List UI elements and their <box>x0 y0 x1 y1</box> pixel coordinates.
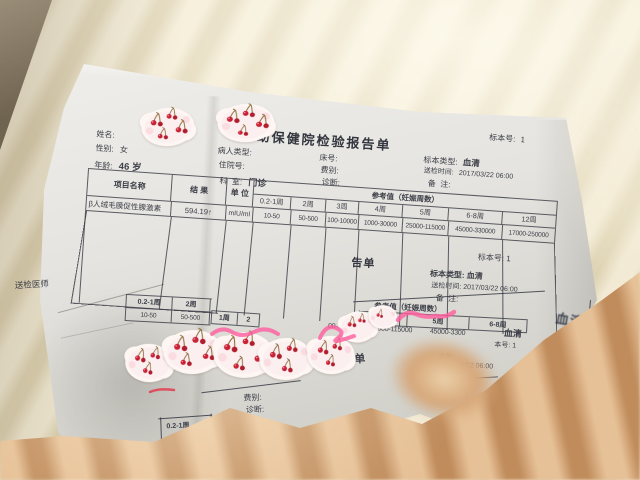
cherry-sticker <box>367 303 399 331</box>
patient-type-label: 病人类型: <box>217 145 252 158</box>
fee-label: 费别: <box>243 392 262 404</box>
specimen-fragment: 本号: 1 <box>494 340 516 351</box>
photo-lab-report-on-blanket: 姓名: 性别: 女 年龄: 46 岁 病人类型: 住院号: 科 室: 门诊 幼保… <box>0 0 640 480</box>
specimen-type-value: 血清 <box>463 157 481 168</box>
gender-row: 性别: 女 <box>95 142 128 155</box>
week-col: 2周 <box>291 197 327 212</box>
week-col: 1周 <box>211 311 238 325</box>
week-col: 2 <box>237 313 260 327</box>
serum-overlap: 血清 <box>504 326 523 340</box>
week-col: 2周 <box>172 297 211 311</box>
week-col: 3周 <box>326 199 360 214</box>
col-unit: 单 位 <box>226 179 255 207</box>
remark-label: 备 注: <box>427 178 450 191</box>
bed-label: 床号: <box>319 152 338 164</box>
mini-table: 0.2-1周 2周 10-50 50-500 <box>125 294 212 325</box>
col-result: 结 果 <box>171 175 227 205</box>
ref-cell: 10-50 <box>253 208 292 225</box>
specimen-no-label: 标本号: <box>489 133 516 144</box>
title-fragment: 告单 <box>351 254 376 271</box>
specimen-no: 标本号: 1 <box>478 252 511 265</box>
specimen-no-value: 1 <box>520 135 525 144</box>
week-col: 0.2-1周 <box>253 194 292 209</box>
specimen-no-row: 标本号: 1 <box>489 132 526 145</box>
cherry-sticker <box>215 101 276 145</box>
week-col: 5周 <box>407 314 470 329</box>
name-label: 姓名: <box>96 129 115 141</box>
doctor-label: 送检医师 <box>15 277 50 291</box>
send-time-value: 2017/03/22 06:00 <box>459 170 514 181</box>
gender-label: 性别: <box>95 143 114 153</box>
send-time-label: 送检时间: <box>423 167 453 176</box>
week-col: 0.2-1周 <box>126 295 173 309</box>
ref-cell: 50-500 <box>172 310 211 324</box>
admission-label: 住院号: <box>218 159 245 172</box>
fee-label: 费别: <box>320 164 339 176</box>
ref-cell: 100-10000 <box>326 213 360 229</box>
ref-cell: 50-500 <box>291 210 327 226</box>
ref-cell: 10-50 <box>126 308 173 322</box>
gender-value: 女 <box>120 145 129 155</box>
unit-cell: mIU/ml <box>226 206 254 222</box>
cherry-sticker <box>139 104 198 150</box>
report-2-left-fragment: 0.2-1周 2周 10-50 50-500 1周 2 <box>125 294 212 325</box>
